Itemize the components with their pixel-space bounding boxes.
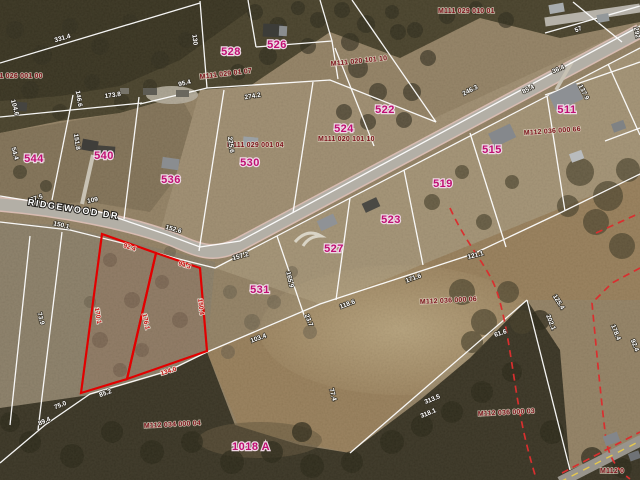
parcel-number-label: 540 [94,150,114,162]
parcel-id-label: M112 0 [600,468,624,475]
parcel-id-label: M111 026 001 00 [0,73,43,80]
shed [120,88,129,94]
parcel-number-label: 527 [324,243,344,255]
parcel-number-label: 536 [161,174,181,186]
parcel-number-label: 515 [482,144,502,156]
parcel-map-viewer[interactable]: 5285265445405365305245225115155195235275… [0,0,640,480]
mobile-home [143,88,157,95]
parcel-number-label: 522 [375,104,395,116]
parcel-number-label: 544 [24,153,44,165]
mobile-home [176,90,189,97]
aerial-terrain [0,0,640,480]
house-roof [279,26,288,36]
parcel-id-label: M111 020 101 10 [318,136,375,143]
parcel-number-label: 528 [221,46,241,58]
terrain-grain [0,0,640,480]
parcel-number-label: 526 [267,39,287,51]
house [161,157,179,170]
parcel-number-label: 511 [557,104,576,116]
parcel-number-label: 524 [334,123,354,135]
parcel-id-label: M111 029 010 01 [438,8,495,15]
parcel-number-label: 1018 A [232,441,270,453]
map-canvas[interactable]: 5285265445405365305245225115155195235275… [0,0,640,480]
parcel-id-label: M111 029 001 04 [227,142,284,149]
parcel-number-label: 530 [240,157,260,169]
parcel-number-label: 519 [433,178,453,190]
parcel-number-label: 523 [381,214,401,226]
dimension-label: 130 [190,34,198,46]
parcel-number-label: 531 [250,284,270,296]
